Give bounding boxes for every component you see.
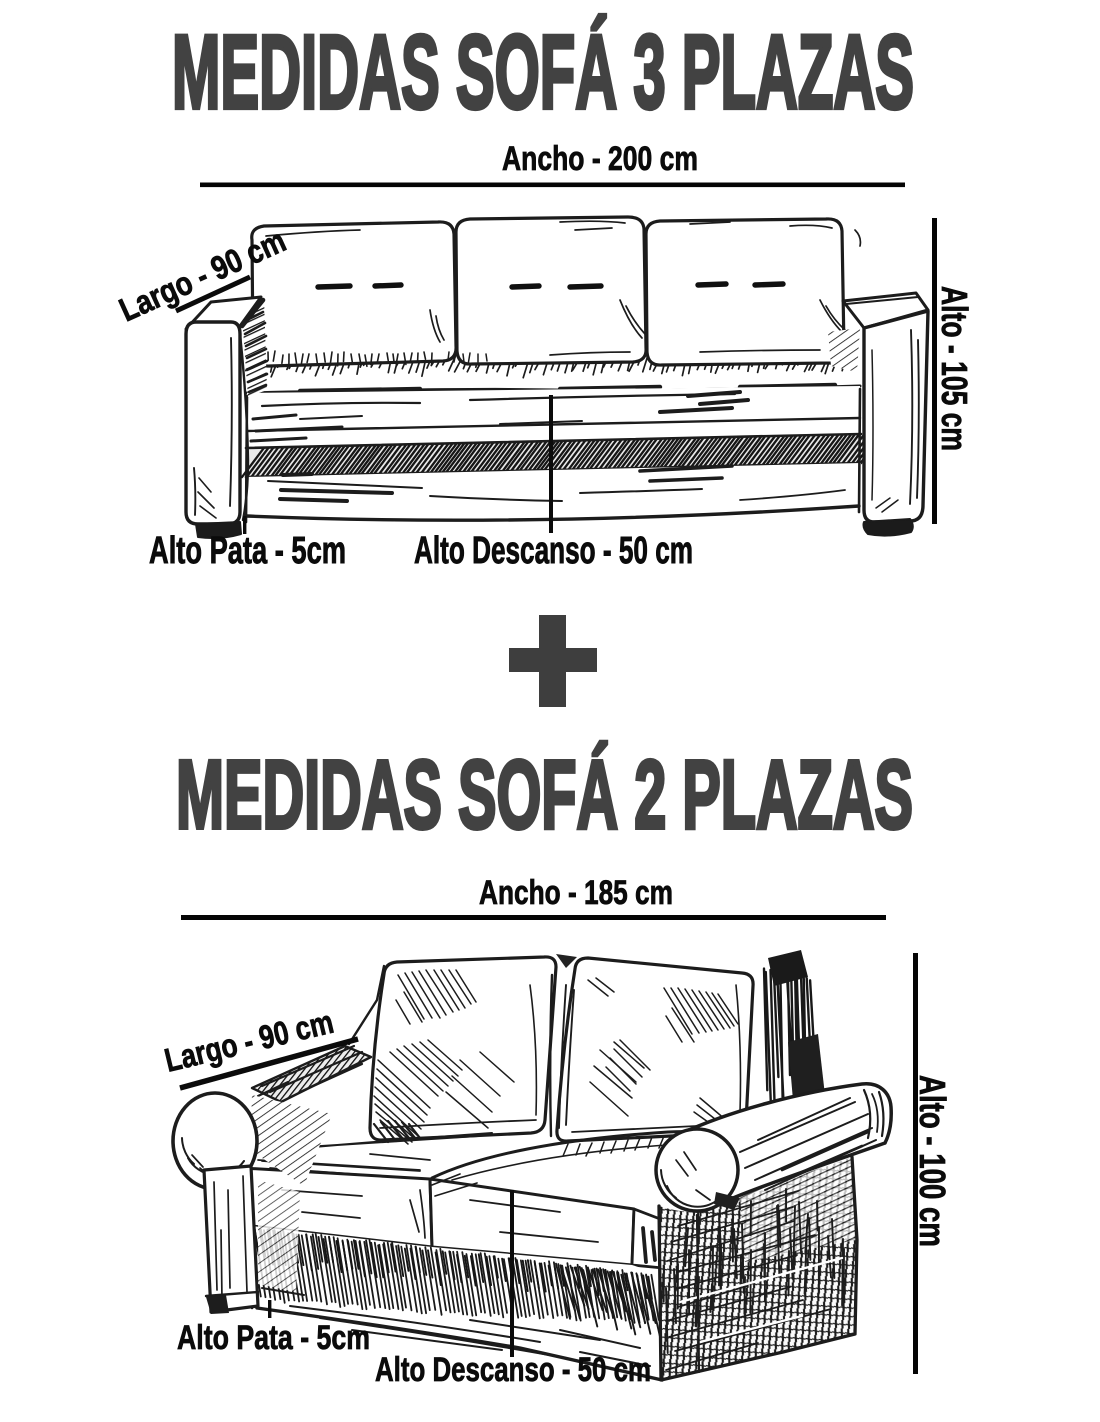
svg-text:Alto Pata - 5cm: Alto Pata - 5cm bbox=[149, 530, 346, 572]
svg-text:Ancho - 200 cm: Ancho - 200 cm bbox=[502, 140, 698, 178]
svg-text:Alto Pata - 5cm: Alto Pata - 5cm bbox=[177, 1319, 370, 1357]
svg-text:Ancho - 185 cm: Ancho - 185 cm bbox=[479, 874, 673, 912]
svg-text:Alto - 100 cm: Alto - 100 cm bbox=[912, 1075, 953, 1247]
svg-text:MEDIDAS SOFÁ 2 PLAZAS: MEDIDAS SOFÁ 2 PLAZAS bbox=[176, 740, 913, 849]
svg-text:Alto - 105 cm: Alto - 105 cm bbox=[934, 286, 975, 451]
svg-text:Alto Descanso - 50 cm: Alto Descanso - 50 cm bbox=[414, 530, 693, 572]
svg-text:MEDIDAS SOFÁ 3 PLAZAS: MEDIDAS SOFÁ 3 PLAZAS bbox=[172, 13, 914, 131]
svg-text:Alto Descanso - 50 cm: Alto Descanso - 50 cm bbox=[375, 1351, 651, 1389]
